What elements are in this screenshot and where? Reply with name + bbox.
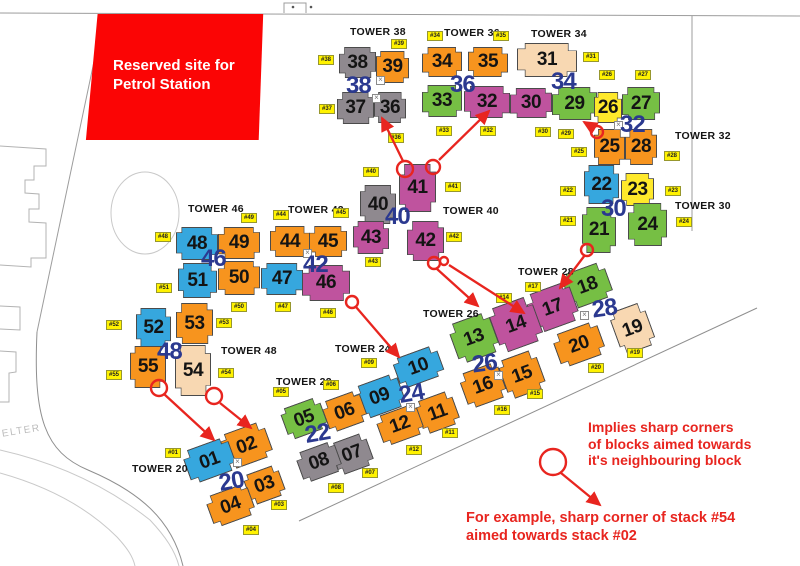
block-number: 38 [347,52,367,74]
tower-label-tower-36: TOWER 36 [444,27,500,39]
stack-tag-28: #28 [664,151,680,161]
block-number: 23 [627,179,647,201]
stack-tag-12: #12 [406,445,422,455]
stack-tag-08: #08 [328,483,344,493]
block-number: 54 [183,360,203,382]
stack-tag-39: #39 [391,39,407,49]
block-number: 43 [361,227,381,249]
stack-group-label-46: 46 [201,247,226,271]
legend-note-line2: of blocks aimed towards [588,436,800,453]
stack-group-label-40: 40 [385,205,410,229]
legend-note-line3: it's neighbouring block [588,452,800,469]
stack-tag-38: #38 [318,55,334,65]
stack-tag-47: #47 [275,302,291,312]
block-number: 28 [631,136,651,158]
stack-tag-32: #32 [480,126,496,136]
stack-tag-22: #22 [560,186,576,196]
tower-label-tower-24: TOWER 24 [335,343,391,355]
stack-tag-30: #30 [535,127,551,137]
stair-icon: × [580,311,589,320]
stack-group-label-34: 34 [551,70,576,94]
block-47: 47 [261,263,303,295]
tower-label-tower-48: TOWER 48 [221,345,277,357]
stack-tag-34: #34 [427,31,443,41]
stack-tag-51: #51 [156,283,172,293]
block-number: 45 [318,231,338,253]
stack-tag-07: #07 [362,468,378,478]
stack-tag-20: #20 [588,363,604,373]
stack-tag-35: #35 [493,31,509,41]
estate-site-plan: 3839373634353332303129262725282223212440… [0,0,800,566]
stack-group-label-48: 48 [157,340,182,364]
stack-tag-41: #41 [445,182,461,192]
stack-tag-19: #19 [627,348,643,358]
block-number: 26 [598,97,618,119]
stack-tag-36: #36 [388,133,404,143]
stack-tag-37: #37 [319,104,335,114]
stack-tag-16: #16 [494,405,510,415]
tower-label-tower-32: TOWER 32 [675,130,731,142]
block-number: 50 [229,267,249,289]
stack-tag-11: #11 [442,428,458,438]
block-number: 29 [564,93,584,115]
example-note-line1: For example, sharp corner of stack #54 [466,510,796,528]
stack-group-label-30: 30 [601,197,626,221]
stair-icon: × [372,94,381,103]
stack-group-label-32: 32 [620,113,645,137]
stack-tag-15: #15 [527,389,543,399]
block-number: 49 [229,232,249,254]
block-number: 52 [143,317,163,339]
block-number: 32 [477,91,497,113]
block-number: 37 [345,97,365,119]
petrol-site-label-line1: Reserved site for [113,56,265,75]
stack-tag-27: #27 [635,70,651,80]
tower-label-tower-38: TOWER 38 [350,26,406,38]
block-26: 26 [594,92,622,123]
block-number: 39 [382,56,402,78]
tower-label-tower-34: TOWER 34 [531,28,587,40]
example-note: For example, sharp corner of stack #54 a… [466,510,796,545]
legend-note-line1: Implies sharp corners [588,419,800,436]
block-number: 21 [589,219,609,241]
block-number: 53 [184,313,204,335]
stack-tag-33: #33 [436,126,452,136]
stack-tag-55: #55 [106,370,122,380]
stack-group-label-42: 42 [303,253,328,277]
stack-tag-21: #21 [560,216,576,226]
block-number: 47 [272,268,292,290]
stack-group-label-28: 28 [590,295,618,322]
stack-tag-01: #01 [165,448,181,458]
tower-label-tower-30: TOWER 30 [675,200,731,212]
stack-tag-23: #23 [665,186,681,196]
block-number: 30 [521,92,541,114]
stack-tag-26: #26 [599,70,615,80]
stack-tag-17: #17 [525,282,541,292]
stack-tag-45: #45 [333,208,349,218]
block-number: 55 [138,356,158,378]
tower-label-tower-40: TOWER 40 [443,205,499,217]
petrol-site-label-line2: Petrol Station [113,75,265,94]
tower-label-tower-20: TOWER 20 [132,463,188,475]
stack-group-label-36: 36 [450,73,475,97]
block-24: 24 [628,203,667,246]
block-43: 43 [353,221,389,254]
stack-tag-52: #52 [106,320,122,330]
stack-tag-31: #31 [583,52,599,62]
tower-label-tower-26: TOWER 26 [423,308,479,320]
stack-tag-49: #49 [241,213,257,223]
block-number: 51 [187,270,207,292]
stack-tag-29: #29 [558,129,574,139]
block-number: 44 [280,231,300,253]
stack-tag-46: #46 [320,308,336,318]
stair-icon: × [376,76,385,85]
stack-tag-14: #14 [496,293,512,303]
stack-tag-42: #42 [446,232,462,242]
tower-label-tower-28: TOWER 28 [518,266,574,278]
block-number: 34 [432,51,452,73]
petrol-station-site: Reserved site for Petrol Station [85,14,265,140]
stack-group-label-22: 22 [303,420,331,448]
legend-note: Implies sharp corners of blocks aimed to… [588,419,800,469]
block-number: 35 [478,51,498,73]
stack-tag-54: #54 [218,368,234,378]
tower-label-tower-46: TOWER 46 [188,203,244,215]
stack-tag-05: #05 [273,387,289,397]
stack-tag-40: #40 [363,167,379,177]
stack-group-label-20: 20 [217,468,245,496]
stack-group-label-24: 24 [397,380,425,408]
block-number: 41 [407,177,427,199]
stack-tag-06: #06 [323,380,339,390]
stack-tag-09: #09 [361,358,377,368]
block-number: 25 [599,136,619,158]
block-20: 20 [550,320,607,369]
stack-tag-03: #03 [271,500,287,510]
stack-tag-04: #04 [243,525,259,535]
block-number: 42 [415,230,435,252]
stack-tag-50: #50 [231,302,247,312]
stack-tag-53: #53 [216,318,232,328]
example-note-line2: aimed towards stack #02 [466,528,796,546]
stack-group-label-26: 26 [470,350,498,377]
block-number: 24 [637,214,657,236]
block-30: 30 [510,88,552,118]
stack-tag-24: #24 [676,217,692,227]
stack-tag-44: #44 [273,210,289,220]
block-number: 22 [591,174,611,196]
block-number: 36 [380,97,400,119]
stack-tag-43: #43 [365,257,381,267]
stack-tag-48: #48 [155,232,171,242]
block-42: 42 [407,221,444,261]
stack-tag-25: #25 [571,147,587,157]
stack-group-label-38: 38 [346,74,371,98]
